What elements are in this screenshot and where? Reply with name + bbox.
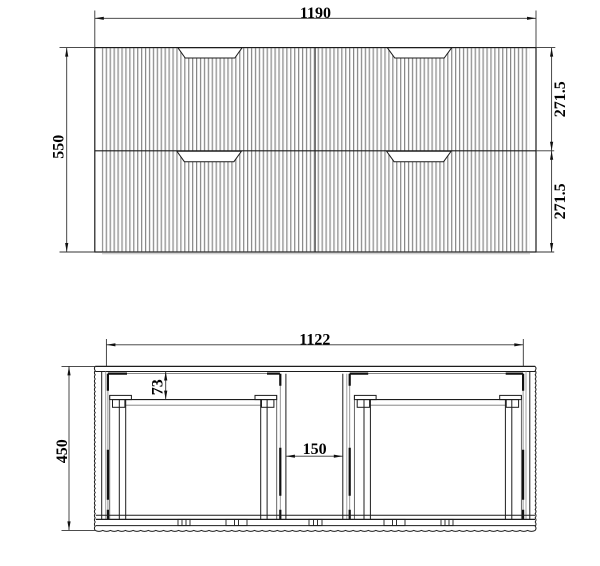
- svg-text:150: 150: [303, 441, 327, 458]
- svg-text:271.5: 271.5: [552, 183, 569, 219]
- svg-text:271.5: 271.5: [552, 81, 569, 117]
- svg-text:1122: 1122: [299, 331, 330, 348]
- svg-text:73: 73: [150, 379, 167, 395]
- svg-text:450: 450: [54, 439, 71, 463]
- svg-text:550: 550: [51, 135, 68, 159]
- svg-text:1190: 1190: [300, 5, 331, 22]
